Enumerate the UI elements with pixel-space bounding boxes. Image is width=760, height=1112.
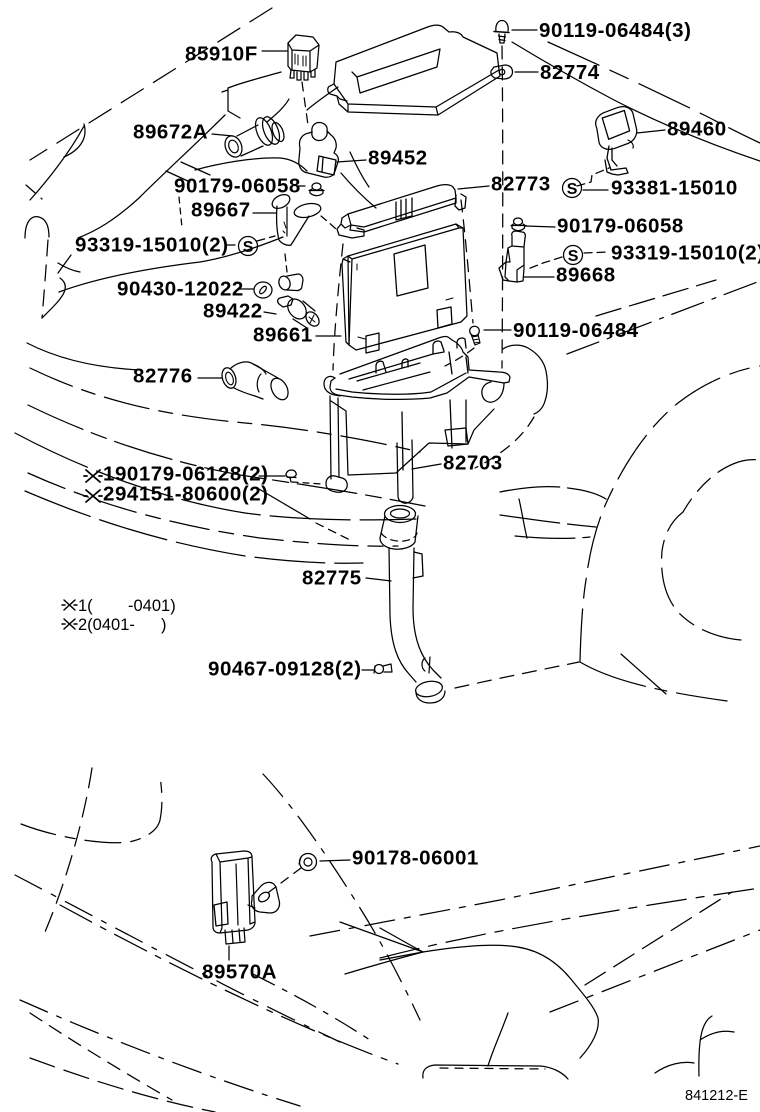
svg-text:841212-E: 841212-E <box>685 1088 748 1104</box>
svg-text:): ) <box>161 616 167 634</box>
svg-text:-0401): -0401) <box>128 597 176 615</box>
svg-text:89667: 89667 <box>191 199 251 222</box>
svg-text:82773: 82773 <box>491 173 551 196</box>
svg-text:89661: 89661 <box>253 324 313 347</box>
svg-text:89668: 89668 <box>556 264 616 287</box>
svg-text:90179-06058: 90179-06058 <box>174 175 301 198</box>
svg-text:294151-80600(2): 294151-80600(2) <box>103 483 269 506</box>
svg-text:82775: 82775 <box>302 567 362 590</box>
svg-text:89570A: 89570A <box>202 961 277 984</box>
svg-text:82774: 82774 <box>540 61 600 84</box>
svg-text:90119-06484(3): 90119-06484(3) <box>539 19 691 42</box>
svg-text:89672A: 89672A <box>133 121 208 144</box>
svg-text:89422: 89422 <box>203 300 263 323</box>
svg-text:82776: 82776 <box>133 365 193 388</box>
svg-text:90467-09128(2): 90467-09128(2) <box>208 658 362 681</box>
svg-text:93319-15010(2): 93319-15010(2) <box>611 242 760 265</box>
svg-text:90430-12022: 90430-12022 <box>117 278 244 301</box>
svg-text:S: S <box>243 239 254 256</box>
svg-text:89460: 89460 <box>667 118 727 141</box>
svg-text:90178-06001: 90178-06001 <box>352 847 479 870</box>
svg-text:S: S <box>567 181 578 198</box>
svg-text:1(: 1( <box>78 597 93 615</box>
svg-text:93319-15010(2): 93319-15010(2) <box>75 234 229 257</box>
svg-text:S: S <box>568 248 579 265</box>
svg-text:89452: 89452 <box>368 147 428 170</box>
svg-text:93381-15010: 93381-15010 <box>611 177 738 200</box>
svg-text:90179-06058: 90179-06058 <box>557 215 684 238</box>
svg-text:85910F: 85910F <box>185 43 258 66</box>
svg-text:2(0401-: 2(0401- <box>78 616 135 634</box>
svg-text:90119-06484: 90119-06484 <box>513 319 639 342</box>
svg-text:82703: 82703 <box>443 452 503 475</box>
